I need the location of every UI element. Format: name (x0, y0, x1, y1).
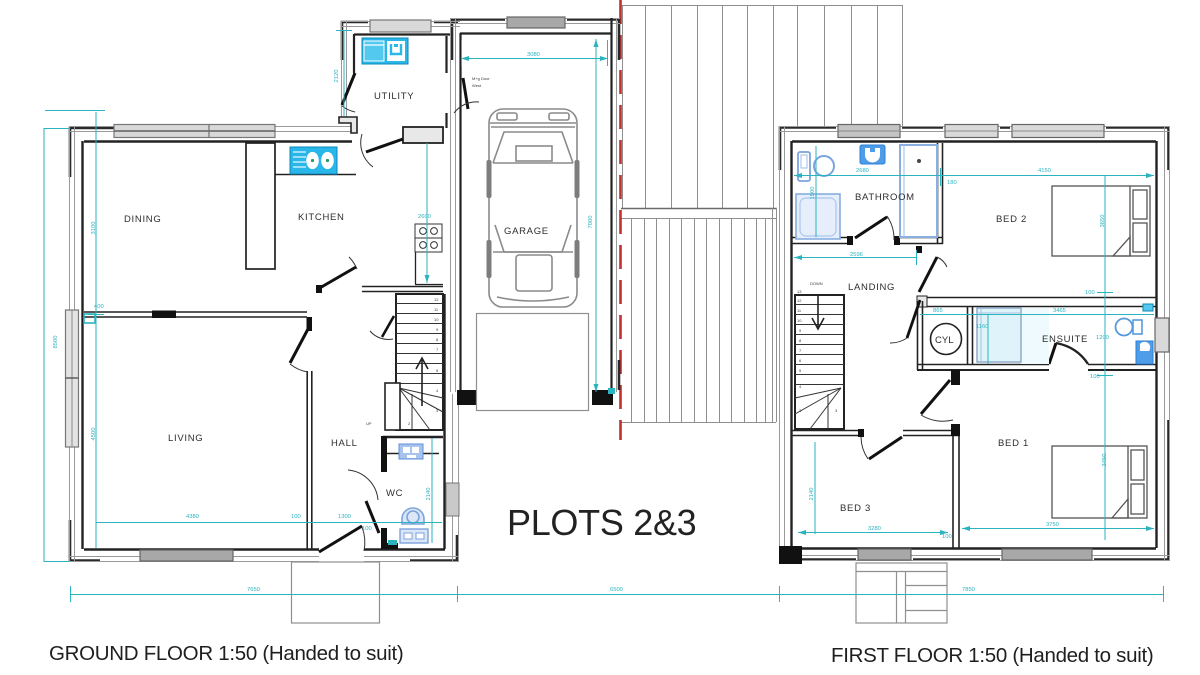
svg-text:2120: 2120 (334, 70, 340, 83)
svg-text:10: 10 (797, 318, 802, 323)
svg-text:7850: 7850 (962, 587, 975, 593)
svg-text:BATHROOM: BATHROOM (855, 192, 915, 203)
svg-text:6500: 6500 (610, 587, 623, 593)
svg-text:CYL: CYL (935, 335, 953, 346)
svg-text:3100: 3100 (91, 222, 97, 235)
svg-text:12: 12 (797, 298, 802, 303)
svg-text:UTILITY: UTILITY (374, 91, 414, 102)
svg-text:West: West (472, 83, 482, 88)
svg-text:DINING: DINING (124, 214, 161, 225)
svg-text:BED 3: BED 3 (840, 503, 871, 514)
svg-text:PLOTS 2&3: PLOTS 2&3 (507, 502, 696, 543)
svg-text:3750: 3750 (1046, 522, 1059, 528)
svg-text:4380: 4380 (186, 514, 199, 520)
svg-text:2140: 2140 (426, 488, 432, 501)
svg-text:13: 13 (797, 289, 802, 294)
svg-text:7000: 7000 (588, 216, 594, 229)
svg-text:BED 2: BED 2 (996, 214, 1027, 225)
svg-text:12: 12 (434, 297, 439, 302)
svg-text:2600: 2600 (418, 214, 431, 220)
svg-text:HALL: HALL (331, 438, 358, 449)
svg-text:1160: 1160 (976, 324, 988, 330)
svg-text:3080: 3080 (527, 52, 540, 58)
svg-text:KITCHEN: KITCHEN (298, 212, 345, 223)
svg-text:WC: WC (386, 488, 403, 499)
svg-text:400: 400 (94, 304, 104, 310)
svg-text:GROUND FLOOR 1:50 (Handed to: GROUND FLOOR 1:50 (Handed to suit) (49, 642, 403, 665)
svg-text:M+g Door: M+g Door (472, 76, 490, 81)
svg-text:BED 1: BED 1 (998, 438, 1029, 449)
svg-text:LIVING: LIVING (168, 433, 203, 444)
svg-text:4150: 4150 (1038, 168, 1051, 174)
svg-text:100: 100 (362, 526, 372, 532)
svg-text:2140: 2140 (809, 488, 815, 501)
svg-text:180: 180 (947, 180, 957, 186)
svg-text:ENSUITE: ENSUITE (1042, 334, 1088, 345)
svg-text:8500: 8500 (53, 336, 59, 349)
svg-text:3465: 3465 (1053, 308, 1066, 314)
svg-text:3280: 3280 (868, 526, 881, 532)
svg-text:1300: 1300 (338, 514, 351, 520)
svg-text:4500: 4500 (91, 428, 97, 441)
svg-text:3450: 3450 (1102, 454, 1108, 467)
svg-text:100: 100 (291, 514, 301, 520)
svg-text:DOWN: DOWN (810, 281, 823, 286)
svg-text:UP: UP (366, 421, 372, 426)
svg-text:LANDING: LANDING (848, 282, 895, 293)
svg-text:GARAGE: GARAGE (504, 226, 549, 237)
svg-text:100: 100 (1085, 290, 1095, 296)
svg-text:7650: 7650 (247, 587, 260, 593)
svg-text:1500: 1500 (810, 187, 816, 200)
svg-text:2596: 2596 (850, 252, 863, 258)
svg-text:1200: 1200 (1096, 335, 1109, 341)
svg-text:FIRST FLOOR 1:50 (Handed to s: FIRST FLOOR 1:50 (Handed to suit) (831, 644, 1153, 667)
svg-text:100: 100 (942, 534, 952, 540)
svg-text:2680: 2680 (856, 168, 869, 174)
svg-text:10: 10 (434, 317, 439, 322)
svg-text:865: 865 (933, 308, 943, 314)
svg-text:100: 100 (1090, 374, 1100, 380)
svg-text:3650: 3650 (1100, 215, 1106, 228)
